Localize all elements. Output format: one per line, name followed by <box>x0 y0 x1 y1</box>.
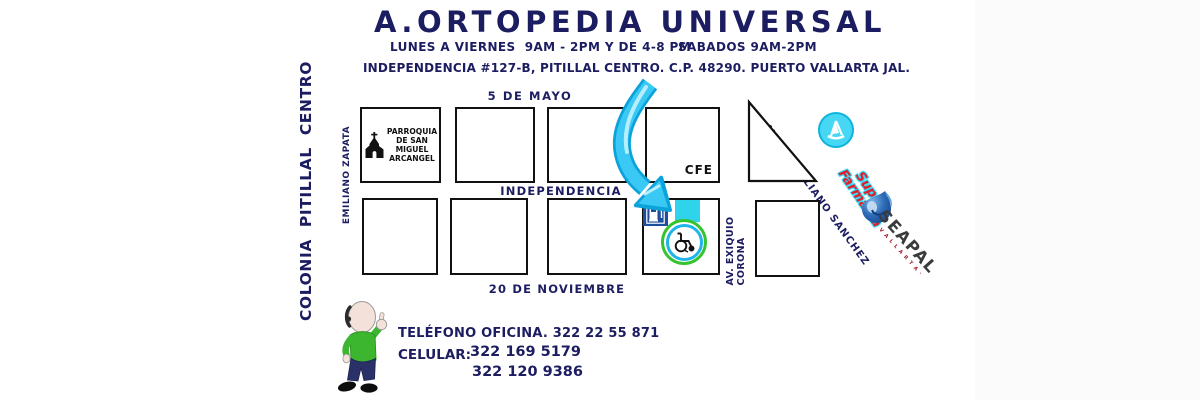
map-block-triangle <box>746 99 820 185</box>
map-block <box>755 200 820 277</box>
church-line1: PARROQUIA <box>387 127 437 136</box>
office-phone: TELÉFONO OFICINA. 322 22 55 871 <box>398 326 659 341</box>
street-exiquio-corona: AV. EXIQUIO CORONA <box>725 217 747 286</box>
street-5-de-mayo: 5 DE MAYO <box>488 89 573 103</box>
colonia-label: COLONIA PITILLAL CENTRO <box>297 61 315 321</box>
church-icon <box>364 132 385 159</box>
mascot-character <box>335 300 393 397</box>
ortopedia-logo-inner-ring <box>666 224 703 261</box>
hours-weekdays: LUNES A VIERNES 9AM - 2PM Y DE 4-8 PM <box>390 40 691 54</box>
location-arrow-icon <box>595 76 695 226</box>
flyer-canvas: A.ORTOPEDIA UNIVERSAL LUNES A VIERNES 9A… <box>0 0 1200 400</box>
church-line4: ARCANGEL <box>389 154 435 163</box>
map-block-church: PARROQUIA DE SAN MIGUEL ARCANGEL <box>360 107 441 183</box>
church-line3: MIGUEL <box>396 145 429 154</box>
business-title: A.ORTOPEDIA UNIVERSAL <box>374 5 886 39</box>
business-address: INDEPENDENCIA #127-B, PITILLAL CENTRO. C… <box>363 61 910 75</box>
seapal-label: SEAPAL · V A L L A R T A · <box>867 208 939 284</box>
cell-phone-2: 322 120 9386 <box>472 364 583 380</box>
church-label: PARROQUIA DE SAN MIGUEL ARCANGEL <box>387 127 437 163</box>
cell-label: CELULAR: <box>398 347 471 363</box>
map-block <box>450 198 528 275</box>
street-exiquio-line2: CORONA <box>736 237 747 285</box>
street-exiquio-line1: AV. EXIQUIO <box>725 217 736 286</box>
map-block <box>362 198 438 275</box>
super-farmacia-icon <box>818 112 854 148</box>
street-emiliano-zapata: EMILIANO ZAPATA <box>342 126 352 224</box>
map-block <box>455 107 535 183</box>
street-20-de-noviembre: 20 DE NOVIEMBRE <box>489 282 625 296</box>
church-line2: DE SAN <box>396 136 428 145</box>
hours-saturday: SABADOS 9AM-2PM <box>678 40 817 54</box>
cell-phone-1: 322 169 5179 <box>470 344 581 360</box>
wheelchair-icon <box>672 230 696 254</box>
background-margin <box>975 0 1200 400</box>
